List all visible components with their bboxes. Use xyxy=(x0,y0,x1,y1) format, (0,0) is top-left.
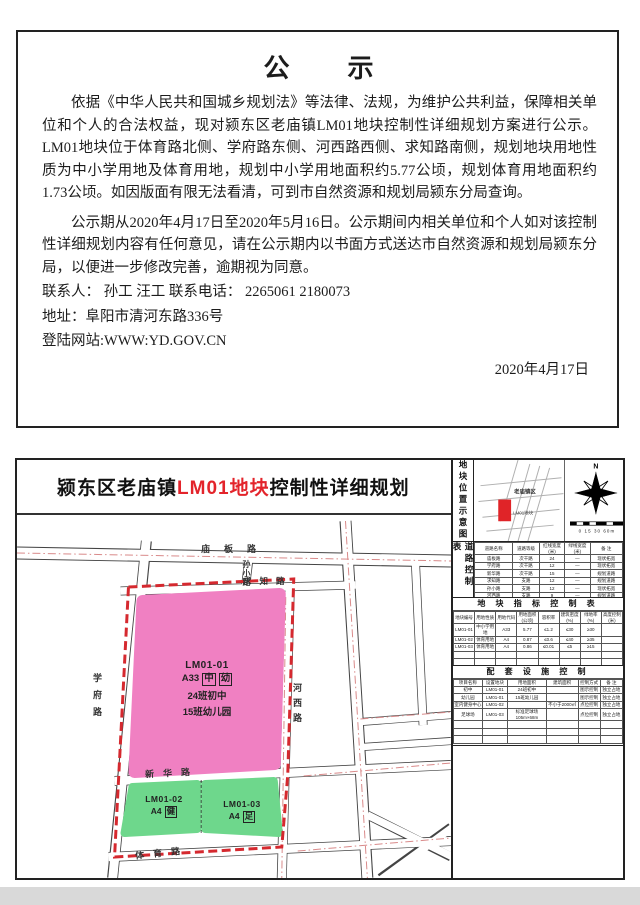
table-cell xyxy=(517,651,538,659)
table-cell: 体育用地 xyxy=(475,644,496,652)
location-inset-map: 老庙镇区 LM01地块 xyxy=(474,460,565,541)
table-cell xyxy=(546,694,578,702)
table-cell: — xyxy=(565,577,590,585)
inset-town-label: 老庙镇区 xyxy=(514,488,536,496)
table-cell: ≤0.6 xyxy=(538,636,559,644)
plan-title-suffix: 控制性详细规划 xyxy=(270,473,410,500)
table-row: 求知路支路12—规划道路 xyxy=(475,577,623,585)
table-cell xyxy=(482,721,507,729)
facility-control-table: 项目名称设置地块用地面积建筑面积控制方式备 注 初中LM01-0124班初中图示… xyxy=(453,679,623,744)
block-label-lm01-02: LM01-02 A4健 xyxy=(127,794,201,818)
table-header-cell: 容积率 xyxy=(538,612,559,624)
plan-title: 颍东区老庙镇LM01地块控制性详细规划 xyxy=(17,460,451,515)
notice-website-line: 登陆网站:WWW:YD.GOV.CN xyxy=(42,330,597,353)
inset-plot-marker xyxy=(498,500,511,522)
table-cell xyxy=(475,659,496,667)
plan-map-pane: 颍东区老庙镇LM01地块控制性详细规划 xyxy=(17,460,453,878)
notice-paragraph-2: 公示期从2020年4月17日至2020年5月16日。公示期间内相关单位和个人如对… xyxy=(42,212,597,280)
road-label-qiuzhi: 求知路 xyxy=(243,575,293,587)
table-cell xyxy=(580,651,601,659)
table-cell: 幼儿园 xyxy=(454,694,483,702)
table-cell: — xyxy=(565,562,590,570)
road-label-miaoban: 庙板路 xyxy=(201,542,270,555)
table-header-cell: 红线宽度 (米) xyxy=(539,543,564,555)
landuse-code: A4 xyxy=(229,811,240,821)
table-cell: 不小于2000㎡ xyxy=(546,701,578,709)
notice-contact-line: 联系人： 孙工 汪工 联系电话： 2265061 2180073 xyxy=(42,281,597,304)
table-row: LM01-03体育用地A40.86≤0.01≤5≥15 xyxy=(454,644,623,652)
table-row: 新华路次干路15—规划道路 xyxy=(475,570,623,578)
table-cell: 24 xyxy=(539,555,564,563)
table-row-empty xyxy=(454,728,623,736)
table-header-cell: 道路名称 xyxy=(475,543,513,555)
table-cell xyxy=(578,728,600,736)
table-cell xyxy=(600,736,622,744)
table-cell xyxy=(546,709,578,721)
table-cell: — xyxy=(565,555,590,563)
table-header-cell: 用地面积 (公顷) xyxy=(517,612,538,624)
table-header-cell: 地块编号 xyxy=(454,612,475,624)
table-header-cell: 绿地率 (%) xyxy=(580,612,601,624)
table-cell: 孙小路 xyxy=(475,585,513,593)
table-cell: ≥35 xyxy=(580,636,601,644)
table-cell xyxy=(454,721,483,729)
block-label-lm01-01: LM01-01 A33中幼 24班初中 15班幼儿园 xyxy=(137,660,277,718)
table-cell xyxy=(454,736,483,744)
north-label: N xyxy=(593,464,598,471)
table-cell: 现状拓宽 xyxy=(590,555,623,563)
table-header-cell: 用地性质 xyxy=(475,612,496,624)
table-cell xyxy=(559,651,580,659)
table-cell: LM01-01 xyxy=(482,686,507,694)
road-label-hexi: 河西路 xyxy=(291,683,304,728)
table-cell xyxy=(482,736,507,744)
block-label-lm01-03: LM01-03 A4足 xyxy=(205,799,279,823)
landuse-code: A4 xyxy=(151,806,162,816)
table-header-cell: 建筑密度 (%) xyxy=(559,612,580,624)
facility-tag-football: 足 xyxy=(243,811,256,823)
road-table-label: 道路控制表 xyxy=(453,542,474,597)
table-cell: 新华路 xyxy=(475,570,513,578)
table-cell: LM01-03 xyxy=(482,709,507,721)
location-section: 地块位置示意图 老庙镇区 LM01地块 N xyxy=(453,460,623,542)
table-cell: 5.77 xyxy=(517,624,538,636)
table-row: 庙板路次干路24—现状拓宽 xyxy=(475,555,623,563)
table-cell: 支路 xyxy=(513,577,540,585)
table-cell xyxy=(600,728,622,736)
table-cell xyxy=(508,721,546,729)
table-cell xyxy=(546,686,578,694)
table-cell xyxy=(601,651,622,659)
table-cell: 学府路 xyxy=(475,562,513,570)
table-row: 室内健身中心LM01-02不小于2000㎡点位控制独立占地 xyxy=(454,701,623,709)
table-cell: 12 xyxy=(539,562,564,570)
table-row: 学府路次干路12—现状拓宽 xyxy=(475,562,623,570)
block-code-line: A4足 xyxy=(205,811,279,823)
table-cell xyxy=(601,624,622,636)
table-header-cell: 设置地块 xyxy=(482,680,507,687)
road-table-section: 道路控制表 道路名称道路等级红线宽度 (米)绿线宽度 (米)备 注 庙板路次干路… xyxy=(453,542,623,598)
table-cell: ≤30 xyxy=(559,624,580,636)
table-row: 幼儿园LM01-0115班幼儿园图示控制独立占地 xyxy=(454,694,623,702)
table-header-cell: 建筑面积 xyxy=(546,680,578,687)
table-cell: ≤40 xyxy=(559,636,580,644)
table-cell: 体育用地 xyxy=(475,636,496,644)
table-row-empty xyxy=(454,721,623,729)
table-cell: 12 xyxy=(539,585,564,593)
table-cell: 24班初中 xyxy=(508,686,546,694)
table-header-cell: 道路等级 xyxy=(513,543,540,555)
table-cell: 点位控制 xyxy=(578,701,600,709)
table-cell: ≤5 xyxy=(559,644,580,652)
table-cell: LM01-01 xyxy=(482,694,507,702)
table-header-cell: 备 注 xyxy=(600,680,622,687)
table-cell xyxy=(601,644,622,652)
table-cell: A4 xyxy=(496,644,517,652)
table-cell: 规划道路 xyxy=(590,570,623,578)
location-inset-wrap: 老庙镇区 LM01地块 N xyxy=(474,460,623,541)
table-cell: 图示控制 xyxy=(578,694,600,702)
plot-index-control-table: 地块编号用地性质用地代码用地面积 (公顷)容积率建筑密度 (%)绿地率 (%)高… xyxy=(453,611,623,666)
table-cell: ≥30 xyxy=(580,624,601,636)
table-cell xyxy=(454,728,483,736)
table-header-cell: 绿线宽度 (米) xyxy=(565,543,590,555)
table-cell xyxy=(454,659,475,667)
table-row: LM01-01中小学用地A335.77≤1.2≤30≥30 xyxy=(454,624,623,636)
table-cell xyxy=(580,659,601,667)
block-id: LM01-02 xyxy=(127,794,201,804)
table-cell: 独立占地 xyxy=(600,694,622,702)
table-cell xyxy=(475,651,496,659)
plan-title-highlight: LM01地块 xyxy=(177,473,270,500)
table-cell xyxy=(601,659,622,667)
index-table-section: 地 块 指 标 控 制 表 地块编号用地性质用地代码用地面积 (公顷)容积率建筑… xyxy=(453,598,623,666)
table-cell xyxy=(517,659,538,667)
table-header-cell: 用地代码 xyxy=(496,612,517,624)
table-cell: — xyxy=(565,570,590,578)
index-table-title: 地 块 指 标 控 制 表 xyxy=(453,598,623,611)
table-cell: A33 xyxy=(496,624,517,636)
table-cell: LM01-01 xyxy=(454,624,475,636)
table-cell: 次干路 xyxy=(513,570,540,578)
compass-and-scale: N 0 15 30 60m xyxy=(565,460,623,541)
block-id: LM01-01 xyxy=(137,660,277,671)
table-row: 足球场LM01-03标准足球场105m×68m点位控制独立占地 xyxy=(454,709,623,721)
table-cell xyxy=(508,701,546,709)
block-code-line: A4健 xyxy=(127,806,201,818)
table-cell: ≤1.2 xyxy=(538,624,559,636)
table-cell: 独立占地 xyxy=(600,709,622,721)
location-section-label: 地块位置示意图 xyxy=(453,460,474,541)
table-cell xyxy=(538,651,559,659)
table-row: 孙小路支路12—现状拓宽 xyxy=(475,585,623,593)
public-notice-box: 公 示 依据《中华人民共和国城乡规划法》等法律、法规，为维护公共利益，保障相关单… xyxy=(16,30,619,428)
plan-title-prefix: 颍东区老庙镇 xyxy=(57,473,177,500)
notice-title: 公 示 xyxy=(42,48,597,85)
notice-address-line: 地址：阜阳市清河东路336号 xyxy=(42,306,597,329)
table-header-cell: 项目名称 xyxy=(454,680,483,687)
table-cell: 求知路 xyxy=(475,577,513,585)
table-cell xyxy=(454,651,475,659)
photo-bottom-edge xyxy=(0,887,640,905)
table-header-row: 地块编号用地性质用地代码用地面积 (公顷)容积率建筑密度 (%)绿地率 (%)高… xyxy=(454,612,623,624)
table-header-cell: 高度控制 (米) xyxy=(601,612,622,624)
table-header-cell: 用地面积 xyxy=(508,680,546,687)
table-row-empty xyxy=(454,736,623,744)
scanned-notice-page: { "notice": { "title": "公 示", "paragraph… xyxy=(0,0,640,905)
table-cell: LM01-02 xyxy=(482,701,507,709)
table-cell xyxy=(508,728,546,736)
table-cell: LM01-03 xyxy=(454,644,475,652)
table-header-cell: 控制方式 xyxy=(578,680,600,687)
table-cell: 足球场 xyxy=(454,709,483,721)
block-line-classes: 24班初中 xyxy=(137,688,277,702)
table-cell: 独立占地 xyxy=(600,701,622,709)
table-cell xyxy=(496,659,517,667)
plan-info-pane: 地块位置示意图 老庙镇区 LM01地块 N xyxy=(453,460,623,878)
plan-sheet: 颍东区老庙镇LM01地块控制性详细规划 xyxy=(15,458,625,880)
block-id: LM01-03 xyxy=(205,799,279,809)
table-row: LM01-02体育用地A40.87≤0.6≤40≥35 xyxy=(454,636,623,644)
table-cell: A4 xyxy=(496,636,517,644)
table-cell: — xyxy=(565,585,590,593)
table-header-cell: 备 注 xyxy=(590,543,623,555)
table-cell xyxy=(508,736,546,744)
table-cell: 图示控制 xyxy=(578,686,600,694)
table-row: 初中LM01-0124班初中图示控制独立占地 xyxy=(454,686,623,694)
table-cell xyxy=(538,659,559,667)
table-cell: LM01-02 xyxy=(454,636,475,644)
table-cell: 室内健身中心 xyxy=(454,701,483,709)
table-cell xyxy=(578,736,600,744)
table-cell: 中小学用地 xyxy=(475,624,496,636)
road-label-xuefu: 学府路 xyxy=(91,673,104,724)
table-cell xyxy=(559,659,580,667)
block-line-kindergarten: 15班幼儿园 xyxy=(137,704,277,718)
table-cell xyxy=(546,721,578,729)
table-header-row: 道路名称道路等级红线宽度 (米)绿线宽度 (米)备 注 xyxy=(475,543,623,555)
table-cell: 独立占地 xyxy=(600,686,622,694)
table-cell: 12 xyxy=(539,577,564,585)
table-header-row: 项目名称设置地块用地面积建筑面积控制方式备 注 xyxy=(454,680,623,687)
table-cell: ≤0.01 xyxy=(538,644,559,652)
inset-road-lines xyxy=(479,460,564,541)
table-row-empty xyxy=(454,659,623,667)
notice-date: 2020年4月17日 xyxy=(42,358,597,379)
facility-table-section: 配 套 设 施 控 制 项目名称设置地块用地面积建筑面积控制方式备 注 初中LM… xyxy=(453,666,623,746)
table-cell: 现状拓宽 xyxy=(590,585,623,593)
table-cell: 标准足球场105m×68m xyxy=(508,709,546,721)
north-compass-icon xyxy=(575,472,618,515)
table-cell xyxy=(601,636,622,644)
inset-plot-label: LM01地块 xyxy=(513,509,534,516)
facility-tag-middle-school: 中 xyxy=(202,673,216,686)
road-control-table: 道路名称道路等级红线宽度 (米)绿线宽度 (米)备 注 庙板路次干路24—现状拓… xyxy=(474,542,623,598)
table-cell: 0.86 xyxy=(517,644,538,652)
scale-bar-labels: 0 15 30 60m xyxy=(579,528,616,533)
table-cell xyxy=(600,721,622,729)
block-code-line: A33中幼 xyxy=(137,673,277,686)
table-cell: 15班幼儿园 xyxy=(508,694,546,702)
table-cell xyxy=(482,728,507,736)
table-cell xyxy=(496,651,517,659)
notice-paragraph-1: 依据《中华人民共和国城乡规划法》等法律、法规，为维护公共利益，保障相关单位和个人… xyxy=(42,92,597,205)
table-cell: 庙板路 xyxy=(475,555,513,563)
scale-bar: 0 15 30 60m xyxy=(570,522,623,534)
facility-table-title: 配 套 设 施 控 制 xyxy=(453,666,623,679)
table-cell: 点位控制 xyxy=(578,709,600,721)
table-cell: 次干路 xyxy=(513,562,540,570)
table-cell: 支路 xyxy=(513,585,540,593)
facility-tag-kindergarten: 幼 xyxy=(219,673,233,686)
table-cell: 规划道路 xyxy=(590,577,623,585)
table-cell xyxy=(546,728,578,736)
table-cell: 15 xyxy=(539,570,564,578)
table-cell xyxy=(546,736,578,744)
table-row-empty xyxy=(454,651,623,659)
empty-panel-area xyxy=(453,746,623,878)
table-cell: ≥15 xyxy=(580,644,601,652)
table-cell: 0.87 xyxy=(517,636,538,644)
table-cell: 次干路 xyxy=(513,555,540,563)
table-cell: 现状拓宽 xyxy=(590,562,623,570)
table-cell xyxy=(578,721,600,729)
facility-tag-gym: 健 xyxy=(165,806,178,818)
plan-map-canvas: 庙板路 孙小路 求知路 学府路 河西路 新华路 体育路 LM01-01 A33中… xyxy=(17,515,451,878)
table-cell: 初中 xyxy=(454,686,483,694)
landuse-code: A33 xyxy=(182,673,199,684)
